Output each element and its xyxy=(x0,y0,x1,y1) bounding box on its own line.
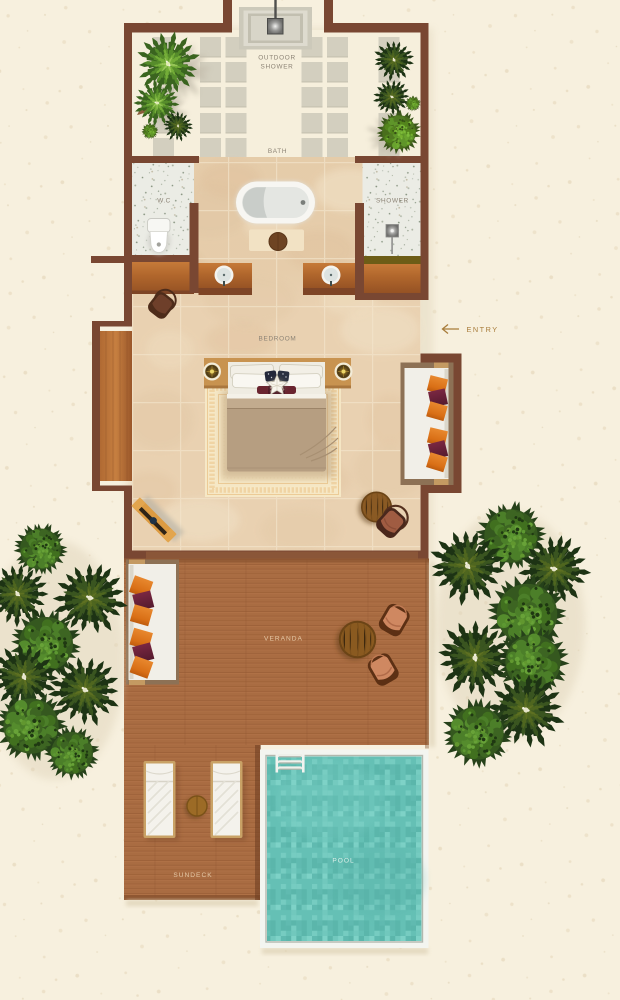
svg-text:ENTRY: ENTRY xyxy=(467,325,499,334)
svg-text:SUNDECK: SUNDECK xyxy=(173,872,212,879)
svg-text:POOL: POOL xyxy=(332,858,354,865)
svg-text:SHOWER: SHOWER xyxy=(376,198,409,205)
svg-text:BEDROOM: BEDROOM xyxy=(259,336,297,343)
svg-text:OUTDOOR: OUTDOOR xyxy=(258,55,296,62)
svg-text:VERANDA: VERANDA xyxy=(264,636,303,643)
svg-text:SHOWER: SHOWER xyxy=(261,64,294,71)
svg-text:W.C: W.C xyxy=(157,198,171,205)
svg-text:BATH: BATH xyxy=(268,148,287,155)
